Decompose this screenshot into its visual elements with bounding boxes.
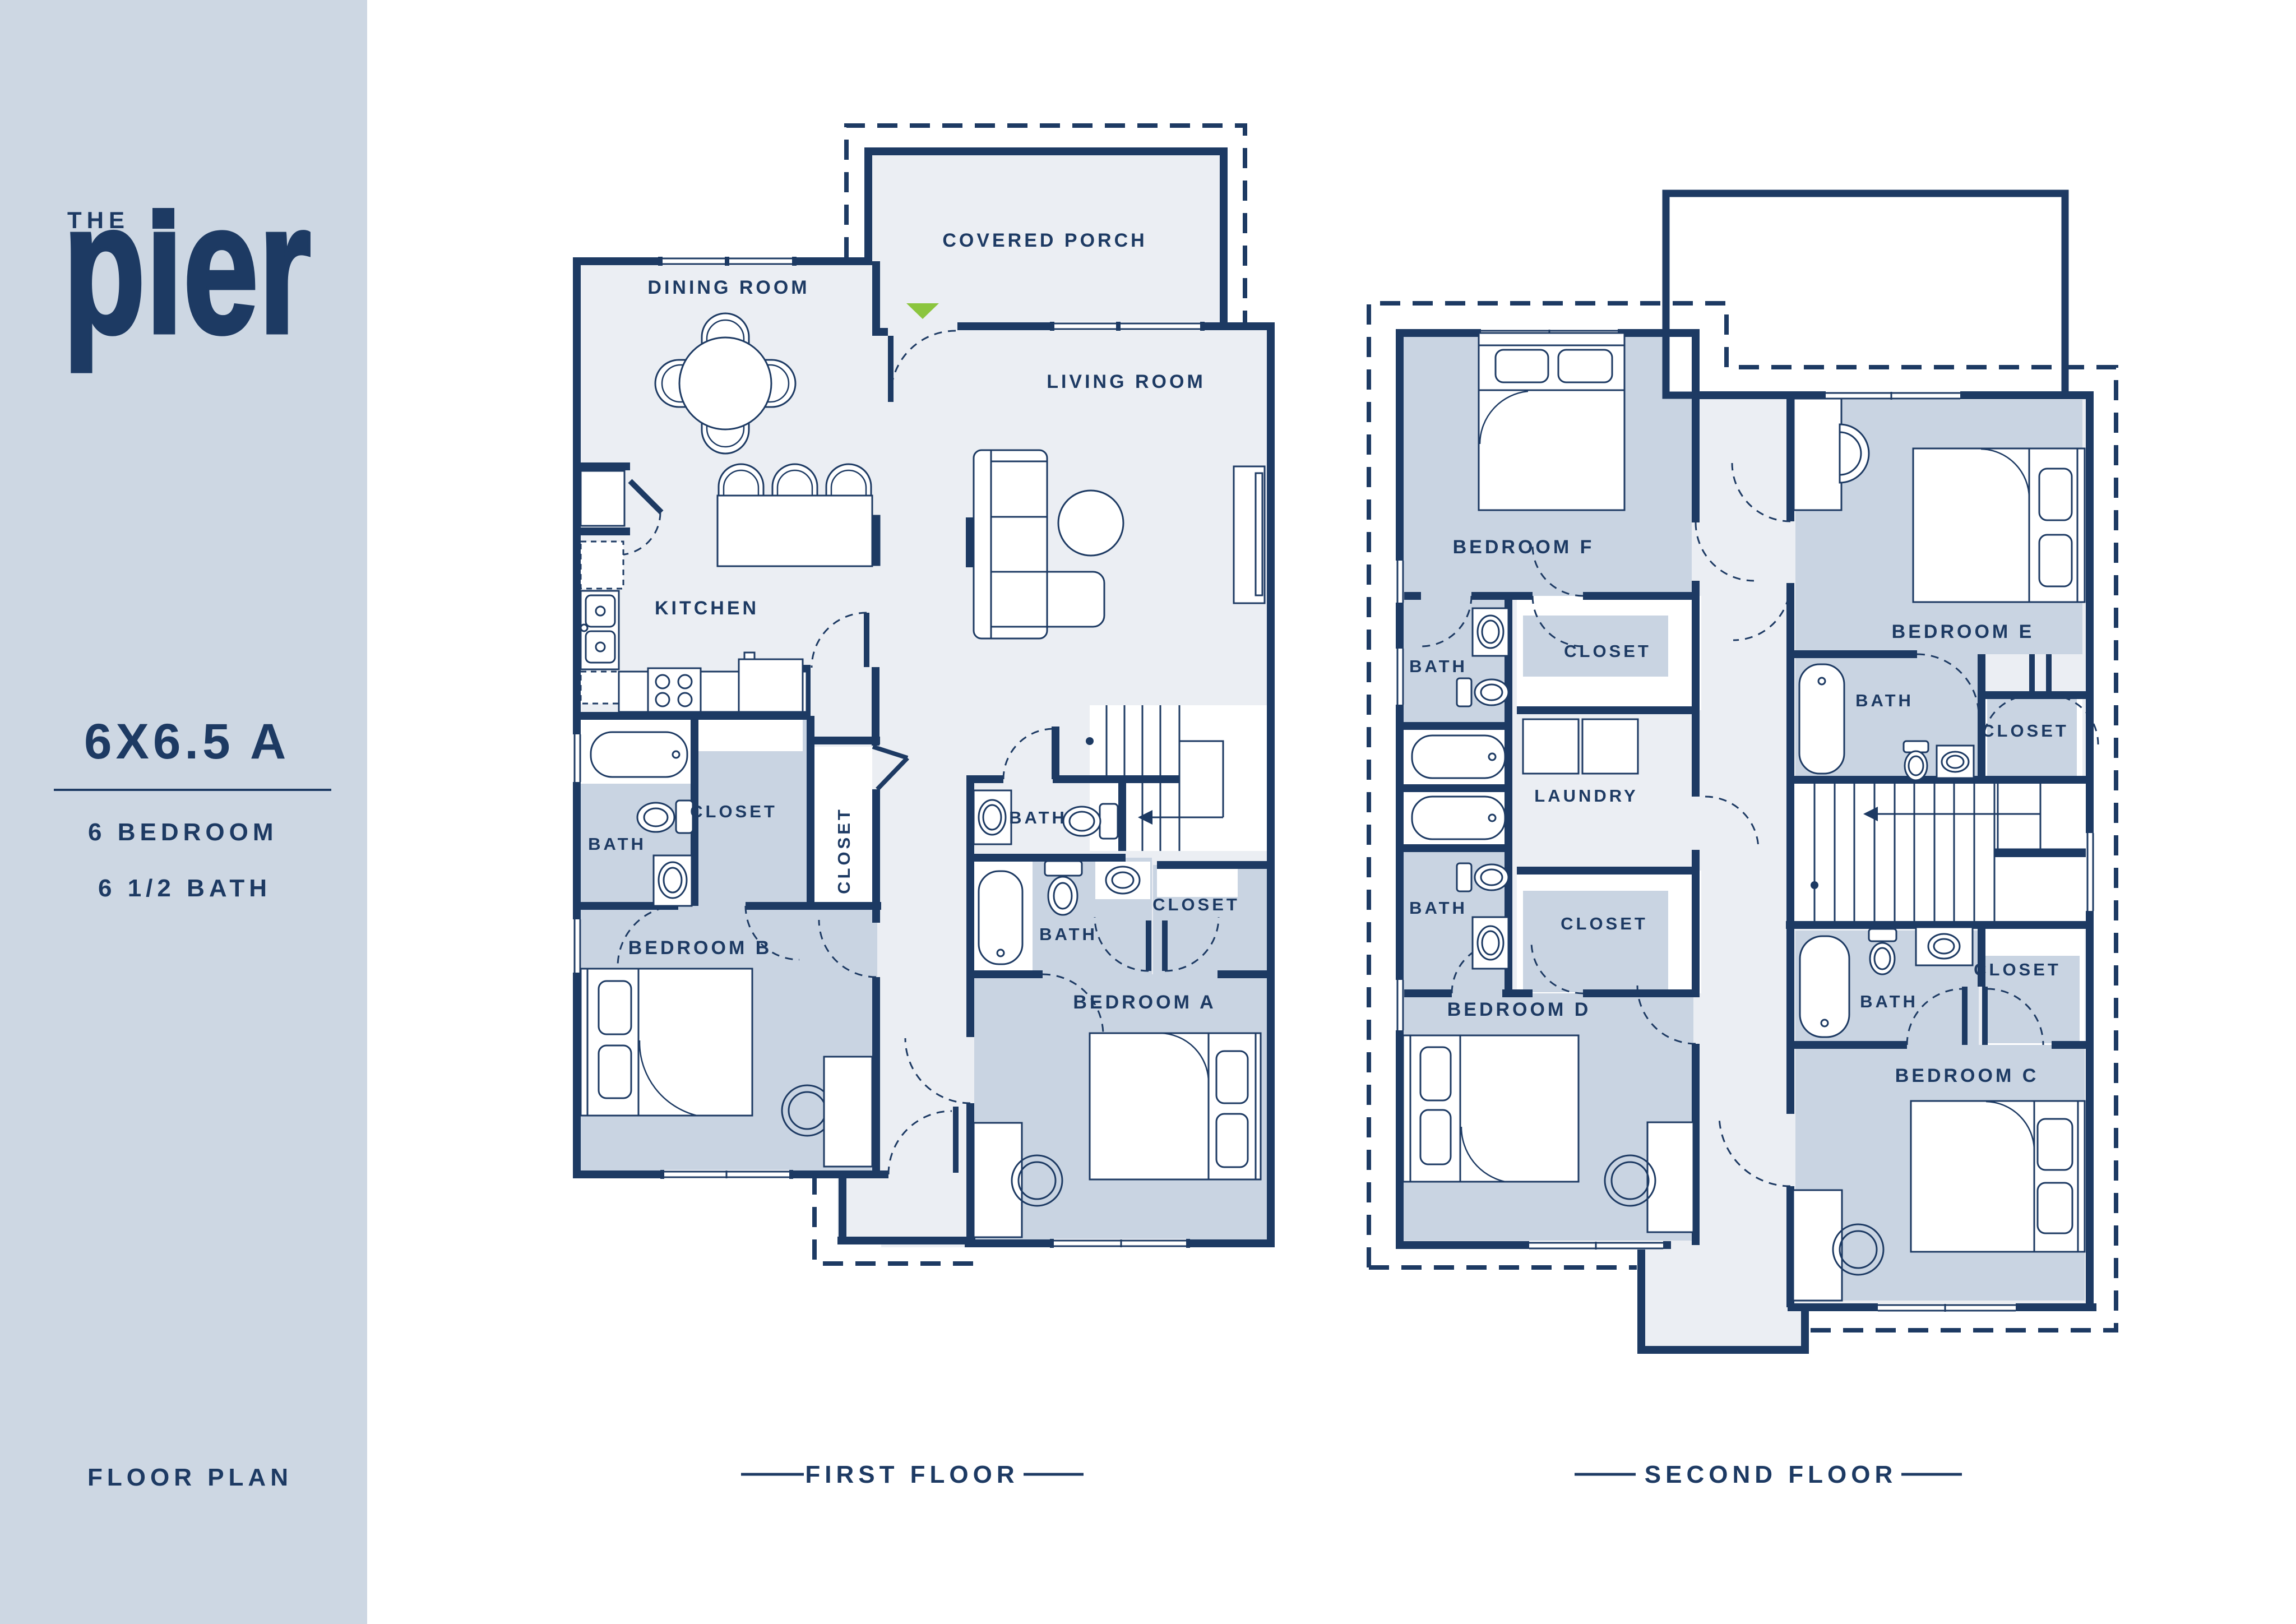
svg-text:COVERED PORCH: COVERED PORCH — [942, 230, 1147, 251]
svg-text:BEDROOM D: BEDROOM D — [1447, 999, 1591, 1020]
svg-text:CLOSET: CLOSET — [1974, 960, 2061, 979]
svg-text:6 BEDROOM: 6 BEDROOM — [88, 818, 277, 846]
svg-text:DINING ROOM: DINING ROOM — [647, 277, 809, 298]
svg-text:FIRST FLOOR: FIRST FLOOR — [805, 1461, 1019, 1488]
svg-text:BATH: BATH — [1860, 992, 1918, 1011]
svg-text:BEDROOM F: BEDROOM F — [1453, 536, 1595, 558]
svg-text:BATH: BATH — [1409, 898, 1468, 918]
svg-text:BATH: BATH — [588, 834, 646, 854]
svg-text:CLOSET: CLOSET — [1152, 895, 1240, 914]
svg-text:LIVING ROOM: LIVING ROOM — [1047, 371, 1206, 392]
svg-text:KITCHEN: KITCHEN — [655, 598, 759, 619]
svg-text:CLOSET: CLOSET — [690, 802, 777, 821]
svg-text:BEDROOM C: BEDROOM C — [1895, 1065, 2039, 1086]
svg-text:BATH: BATH — [1009, 808, 1067, 827]
svg-text:6X6.5 A: 6X6.5 A — [84, 713, 290, 769]
svg-text:BEDROOM A: BEDROOM A — [1073, 992, 1216, 1013]
svg-text:CLOSET: CLOSET — [1561, 914, 1648, 933]
svg-text:CLOSET: CLOSET — [834, 807, 854, 894]
svg-text:BATH: BATH — [1039, 924, 1098, 944]
svg-text:BEDROOM E: BEDROOM E — [1892, 621, 2035, 642]
svg-text:BATH: BATH — [1855, 691, 1914, 710]
svg-text:FLOOR PLAN: FLOOR PLAN — [87, 1464, 293, 1491]
svg-text:BATH: BATH — [1409, 656, 1468, 676]
svg-text:SECOND FLOOR: SECOND FLOOR — [1645, 1461, 1897, 1488]
svg-text:pıer: pıer — [63, 164, 311, 373]
svg-text:CLOSET: CLOSET — [1564, 641, 1651, 661]
svg-text:6 1/2 BATH: 6 1/2 BATH — [98, 875, 271, 902]
svg-text:BEDROOM B: BEDROOM B — [628, 937, 772, 959]
svg-text:LAUNDRY: LAUNDRY — [1534, 786, 1638, 806]
svg-text:CLOSET: CLOSET — [1982, 721, 2069, 741]
